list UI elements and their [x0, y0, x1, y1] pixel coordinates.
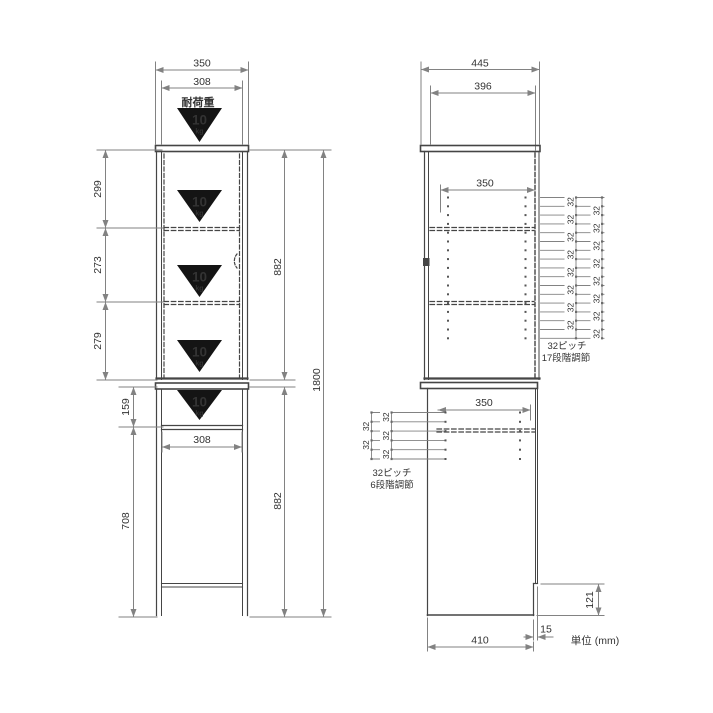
pin-hole-dot	[525, 197, 527, 199]
pin-hole-dot	[519, 449, 521, 451]
dim-total-height: 1800	[311, 368, 323, 392]
dim-section1: 299	[92, 180, 104, 198]
pin-hole-dot	[525, 205, 527, 207]
pin-hole-dot	[445, 430, 447, 432]
dim-lower-top-height: 159	[120, 398, 132, 416]
side-lower-outline	[421, 383, 538, 616]
load-unit: kg	[195, 411, 203, 418]
door-handle-mark	[234, 254, 237, 268]
pin-hole-dot	[525, 302, 527, 304]
pitch-ladder-upper: 32323232323232323232323232323232	[541, 196, 605, 340]
pitch-label: 32	[566, 303, 576, 313]
pin-hole-dot	[447, 293, 449, 295]
dim-front-inner-width: 308	[193, 76, 211, 88]
front-view: 350 308 耐荷重	[92, 58, 331, 618]
pin-hole-dot	[445, 449, 447, 451]
pin-hole-dot	[447, 267, 449, 269]
pitch-label: 32	[592, 206, 602, 216]
pitch-label: 32	[566, 320, 576, 330]
shelf-pin-holes	[445, 197, 527, 461]
pin-hole-dot	[519, 430, 521, 432]
pitch-ladder-lower: 3232323232	[360, 411, 446, 460]
pitch-label: 32	[592, 329, 602, 339]
pitch-label: 32	[381, 431, 391, 441]
pin-hole-dot	[447, 249, 449, 251]
side-handle-mark	[423, 258, 430, 266]
pitch-upper-note2: 17段階調節	[542, 352, 591, 364]
pitch-label: 32	[592, 259, 602, 269]
pin-hole-dot	[525, 232, 527, 234]
side-top-dimensions	[421, 62, 540, 150]
front-lower-unit-outline	[156, 383, 249, 616]
pin-hole-dot	[447, 285, 449, 287]
load-unit: kg	[195, 129, 203, 136]
pin-hole-dot	[447, 197, 449, 199]
side-view: 445 396 350	[360, 58, 619, 652]
pin-hole-dot	[525, 214, 527, 216]
pin-hole-dot	[447, 329, 449, 331]
pitch-lower-note1: 32ピッチ	[372, 468, 411, 479]
pitch-label: 32	[592, 311, 602, 321]
pitch-label: 32	[381, 449, 391, 459]
pin-hole-dot	[447, 320, 449, 322]
technical-drawing-page: 350 308 耐荷重	[0, 0, 713, 713]
dim-section2: 273	[92, 256, 104, 274]
dim-base-depth: 410	[471, 635, 489, 647]
pin-hole-dot	[525, 293, 527, 295]
pin-hole-dot	[525, 258, 527, 260]
front-left-dims	[97, 150, 163, 617]
pin-hole-dot	[447, 337, 449, 339]
load-value: 10	[192, 195, 207, 210]
unit-note: 単位 (mm)	[571, 634, 619, 647]
pin-hole-dot	[519, 458, 521, 460]
pitch-label: 32	[592, 241, 602, 251]
dim-lower-height: 882	[272, 492, 284, 510]
dim-kick-height: 121	[584, 591, 596, 609]
pitch-label: 32	[592, 294, 602, 304]
load-capacity-label: 耐荷重	[182, 95, 215, 109]
pin-hole-dot	[447, 241, 449, 243]
dim-upper-shelf-depth: 350	[476, 178, 494, 190]
pin-hole-dot	[525, 276, 527, 278]
pin-hole-dot	[519, 439, 521, 441]
pin-hole-dot	[447, 311, 449, 313]
load-warning-triangles: 10kg10kg10kg10kg10kg	[177, 108, 222, 420]
pin-hole-dot	[447, 258, 449, 260]
cabinet-dimension-drawing: 350 308 耐荷重	[0, 0, 713, 713]
pin-hole-dot	[519, 421, 521, 423]
dim-lower-open-height: 708	[120, 512, 132, 530]
load-unit: kg	[195, 286, 203, 293]
pin-hole-dot	[519, 412, 521, 414]
pin-hole-dot	[447, 205, 449, 207]
pin-hole-dot	[525, 223, 527, 225]
pitch-label: 32	[566, 267, 576, 277]
pitch-label: 32	[381, 412, 391, 422]
pitch-label: 32	[592, 276, 602, 286]
pin-hole-dot	[447, 214, 449, 216]
pin-hole-dot	[445, 439, 447, 441]
load-value: 10	[192, 270, 207, 285]
pitch-upper-note1: 32ピッチ	[547, 341, 586, 352]
pitch-label: 32	[361, 421, 371, 431]
pitch-label: 32	[566, 232, 576, 242]
pin-hole-dot	[525, 329, 527, 331]
pin-hole-dot	[445, 421, 447, 423]
pin-hole-dot	[525, 285, 527, 287]
pitch-label: 32	[566, 197, 576, 207]
pitch-label: 32	[592, 223, 602, 233]
pin-hole-dot	[525, 267, 527, 269]
pitch-lower-note2: 6段階調節	[370, 479, 414, 491]
dim-lower-shelf-depth: 350	[475, 397, 493, 409]
dim-front-top-width: 350	[193, 58, 211, 70]
pin-hole-dot	[447, 223, 449, 225]
pin-hole-dot	[447, 276, 449, 278]
load-unit: kg	[195, 361, 203, 368]
dim-front-lower-inner-width: 308	[193, 434, 211, 446]
load-value: 10	[192, 395, 207, 410]
dim-section3: 279	[92, 332, 104, 350]
load-unit: kg	[195, 211, 203, 218]
pin-hole-dot	[525, 241, 527, 243]
dim-upper-height: 882	[272, 258, 284, 276]
pitch-label: 32	[566, 285, 576, 295]
pin-hole-dot	[447, 232, 449, 234]
pin-hole-dot	[525, 320, 527, 322]
dim-inner-depth: 396	[474, 81, 492, 93]
pitch-label: 32	[566, 215, 576, 225]
dim-total-depth: 445	[471, 58, 489, 70]
pitch-label: 32	[361, 440, 371, 450]
load-value: 10	[192, 345, 207, 360]
pin-hole-dot	[445, 412, 447, 414]
pin-hole-dot	[447, 302, 449, 304]
pin-hole-dot	[525, 337, 527, 339]
pin-hole-dot	[525, 311, 527, 313]
pin-hole-dot	[445, 458, 447, 460]
pin-hole-dot	[525, 249, 527, 251]
dim-front-offset: 15	[540, 624, 552, 636]
pitch-label: 32	[566, 250, 576, 260]
load-value: 10	[192, 113, 207, 128]
